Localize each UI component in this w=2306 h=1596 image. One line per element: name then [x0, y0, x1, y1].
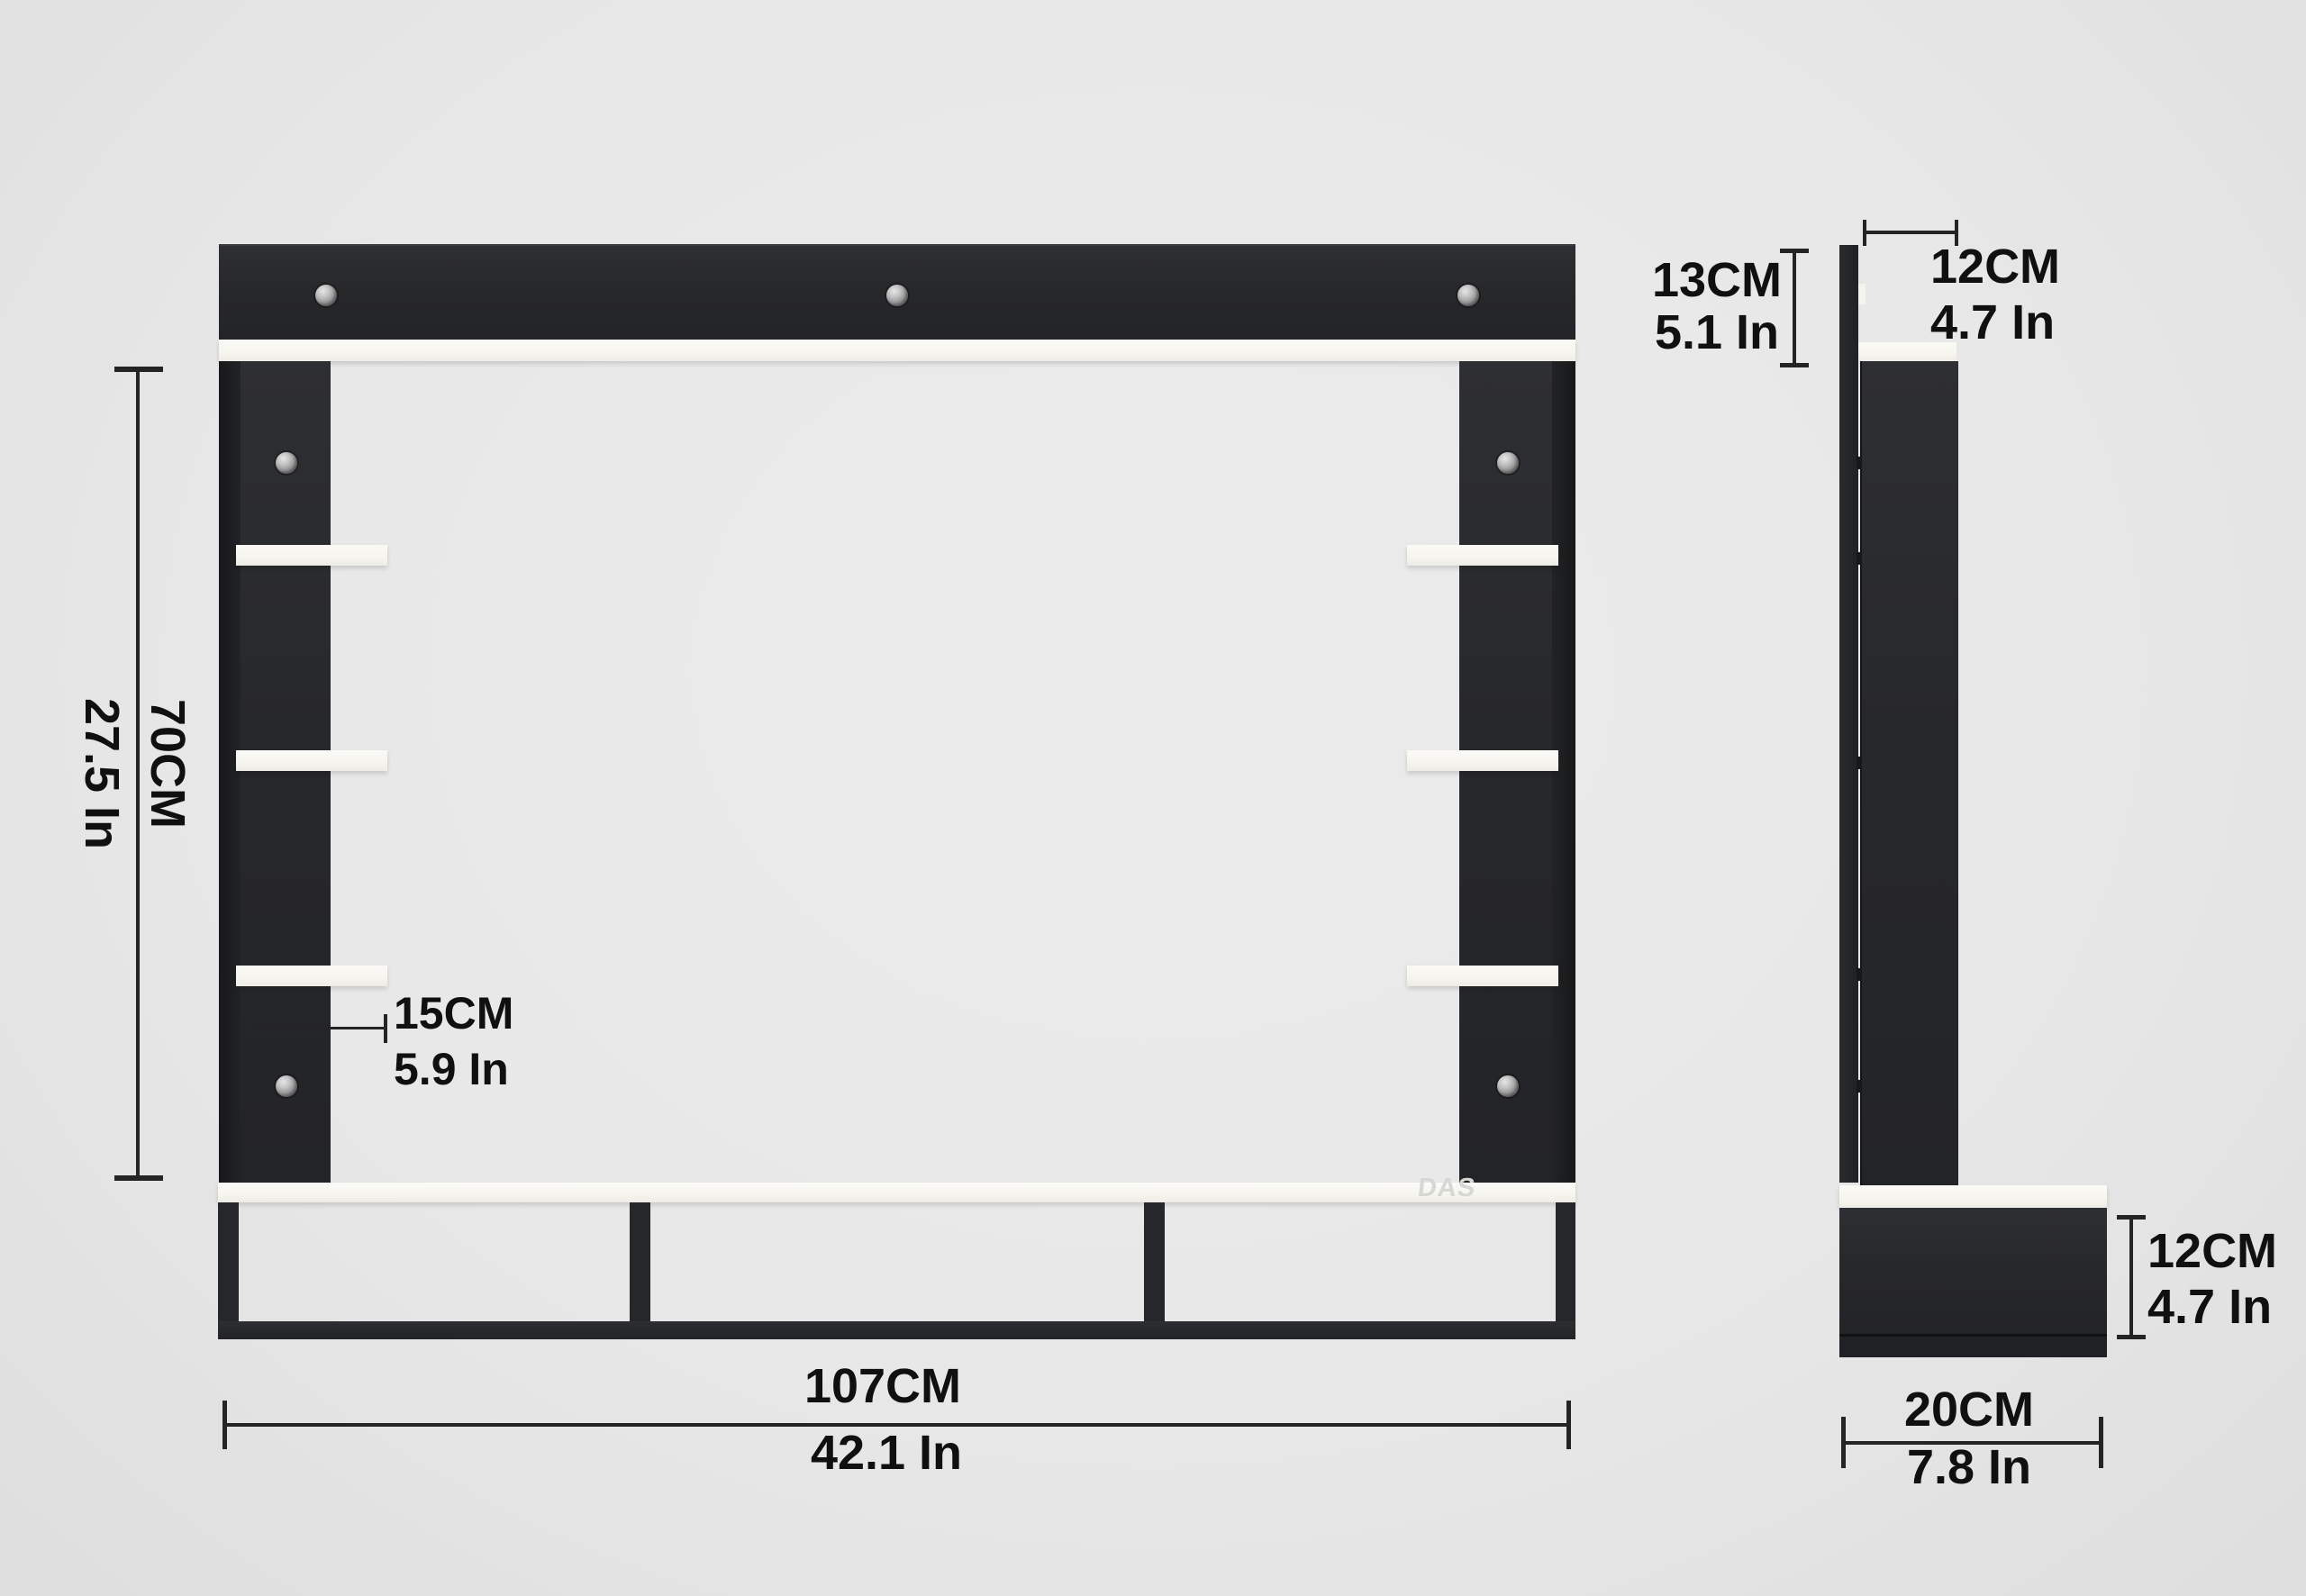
- base-depth-label-inch: 7.8 In: [1907, 1443, 2031, 1492]
- side-notch: [1857, 457, 1862, 469]
- overhang-label-cm: 13CM: [1652, 254, 1782, 306]
- top-depth-label-inch: 4.7 In: [1930, 295, 2060, 350]
- side-notch: [1857, 968, 1862, 981]
- height-dimension-cap: [114, 367, 163, 372]
- height-dimension-line: [136, 369, 140, 1178]
- front-bottom-shelf: [218, 1183, 1575, 1202]
- console-divider: [630, 1202, 650, 1321]
- base-depth-label-cm: 20CM: [1904, 1385, 2034, 1434]
- overhang-label: 13CM 5.1 In: [1652, 254, 1782, 358]
- overhang-dimension-line: [1793, 251, 1796, 367]
- screw-icon: [1497, 1075, 1519, 1097]
- left-shelf: [236, 750, 387, 771]
- base-height-dimension-cap: [2117, 1335, 2146, 1339]
- console-post: [218, 1202, 239, 1321]
- width-label-inch: 42.1 In: [811, 1428, 962, 1477]
- base-height-dimension-cap: [2117, 1215, 2146, 1220]
- overhang-label-inch: 5.1 In: [1652, 306, 1782, 358]
- side-back-panel: [1839, 245, 1858, 1183]
- top-depth-dimension-line: [1865, 231, 1957, 234]
- shelf-depth-leader-cap: [384, 1014, 387, 1043]
- shelf-depth-label-cm: 15CM: [394, 985, 513, 1041]
- base-height-label-cm: 12CM: [2147, 1223, 2277, 1279]
- front-top-shelf: [219, 340, 1575, 361]
- front-right-column: [1459, 361, 1575, 1183]
- top-depth-label: 12CM 4.7 In: [1930, 239, 2060, 350]
- right-shelf: [1407, 545, 1558, 566]
- right-column-edge: [1552, 361, 1575, 1183]
- shelf-depth-leader-line: [250, 1027, 386, 1029]
- side-base-shelf: [1839, 1185, 2107, 1208]
- screw-icon: [315, 285, 337, 306]
- base-height-label-inch: 4.7 In: [2147, 1279, 2277, 1335]
- screw-icon: [886, 285, 908, 306]
- left-column-edge: [219, 361, 241, 1183]
- console-divider: [1144, 1202, 1165, 1321]
- dimension-diagram: DAS 70CM 27.5 In 107CM 42.1 In: [0, 0, 2306, 1596]
- height-label-inch: 27.5 In: [77, 698, 126, 849]
- console-post: [1556, 1202, 1575, 1321]
- side-column: [1860, 361, 1958, 1185]
- right-shelf: [1407, 750, 1558, 771]
- width-label-cm: 107CM: [804, 1362, 961, 1410]
- right-shelf: [1407, 966, 1558, 986]
- screw-icon: [276, 1075, 297, 1097]
- width-dimension-cap: [1566, 1401, 1571, 1449]
- overhang-dimension-cap: [1780, 249, 1809, 253]
- top-depth-label-cm: 12CM: [1930, 239, 2060, 295]
- side-slot-mark: [1858, 284, 1866, 304]
- side-base-plinth: [1839, 1334, 2107, 1357]
- overhang-dimension-cap: [1780, 363, 1809, 367]
- side-base-box: [1839, 1208, 2107, 1334]
- shelf-depth-label-inch: 5.9 In: [394, 1041, 513, 1097]
- screw-icon: [1457, 285, 1479, 306]
- front-left-column: [219, 361, 331, 1183]
- left-shelf: [236, 545, 387, 566]
- shelf-depth-label: 15CM 5.9 In: [394, 985, 513, 1097]
- height-dimension-cap: [114, 1175, 163, 1181]
- screw-icon: [1497, 452, 1519, 474]
- top-depth-dimension-cap: [1863, 220, 1866, 246]
- console-bottom-rail: [218, 1321, 1575, 1339]
- base-height-dimension-line: [2129, 1218, 2133, 1338]
- base-height-label: 12CM 4.7 In: [2147, 1223, 2277, 1335]
- left-shelf: [236, 966, 387, 986]
- screw-icon: [276, 452, 297, 474]
- width-dimension-cap: [222, 1401, 227, 1449]
- side-notch: [1857, 552, 1862, 565]
- side-notch: [1857, 757, 1862, 769]
- side-notch: [1857, 1080, 1862, 1093]
- base-depth-dimension-cap: [1841, 1417, 1846, 1468]
- base-depth-dimension-cap: [2099, 1417, 2103, 1468]
- brand-watermark: DAS: [1416, 1175, 1476, 1202]
- height-label-cm: 70CM: [143, 699, 192, 829]
